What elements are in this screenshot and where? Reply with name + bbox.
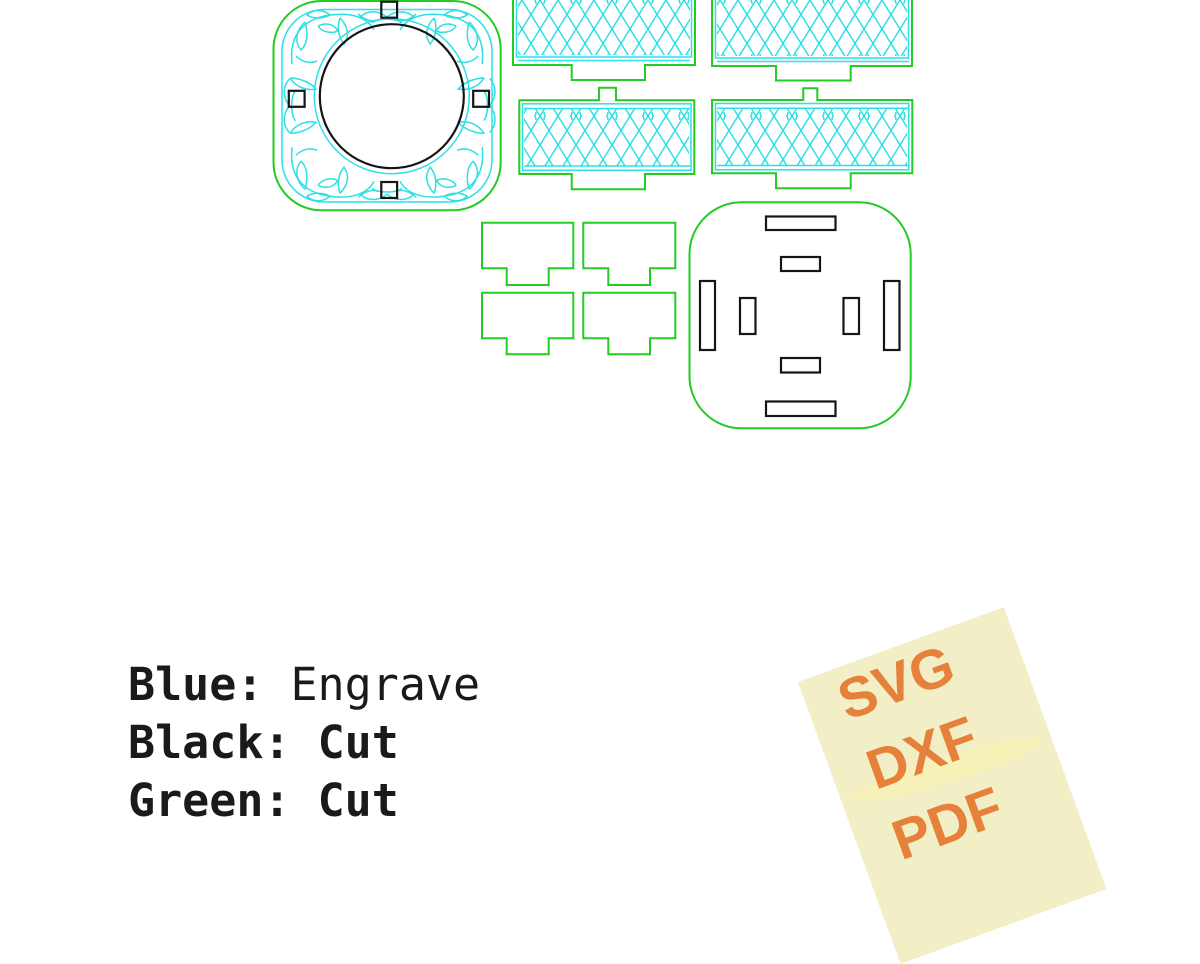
slot-top-long [766,217,836,231]
flourish-top-left [290,11,378,90]
slot-left-tall [700,281,715,350]
side-panel-top-right [712,0,912,81]
base-plate-cut-outline [690,202,911,428]
celtic-knot-engraving [717,0,907,56]
foot-piece-3 [482,293,573,355]
slot-inner-right [844,298,860,334]
foot-piece-1 [482,223,573,285]
side-panel-top-left [513,0,695,80]
top-plate-piece [274,1,501,210]
circle-opening-cut [320,24,464,168]
legend-color-name: Blue: [128,658,263,711]
feet-pieces [482,223,675,355]
legend-line-green: Green:Cut [128,774,748,832]
foot-piece-4 [583,293,675,355]
base-plate-piece [690,202,911,428]
legend-line-black: Black:Cut [128,716,748,774]
flourish-bottom-left [290,122,378,201]
flourish-top-right [396,11,484,90]
celtic-knot-engraving [524,109,689,166]
foot-piece-2 [583,223,675,285]
slot-inner-left [740,298,756,334]
legend-action: Engrave [290,658,480,711]
flourish-bottom-right [396,122,484,201]
slot-right-tall [884,281,900,350]
legend-action: Cut [318,716,399,769]
side-panel-bottom-left [519,88,694,190]
celtic-knot-engraving [717,109,907,167]
slot-bottom-short [781,358,820,373]
celtic-knot-engraving [518,0,690,55]
slot-top-short [781,257,820,271]
legend-color-name: Black: [128,716,291,769]
circle-engrave-ring [314,19,469,174]
side-panel-bottom-right [712,88,912,188]
legend-line-blue: Blue:Engrave [128,658,748,716]
color-legend: Blue:Engrave Black:Cut Green:Cut [128,658,748,832]
slot-bottom-long [766,402,836,417]
laser-template-preview: Blue:Engrave Black:Cut Green:Cut SVG DXF… [0,0,1200,801]
